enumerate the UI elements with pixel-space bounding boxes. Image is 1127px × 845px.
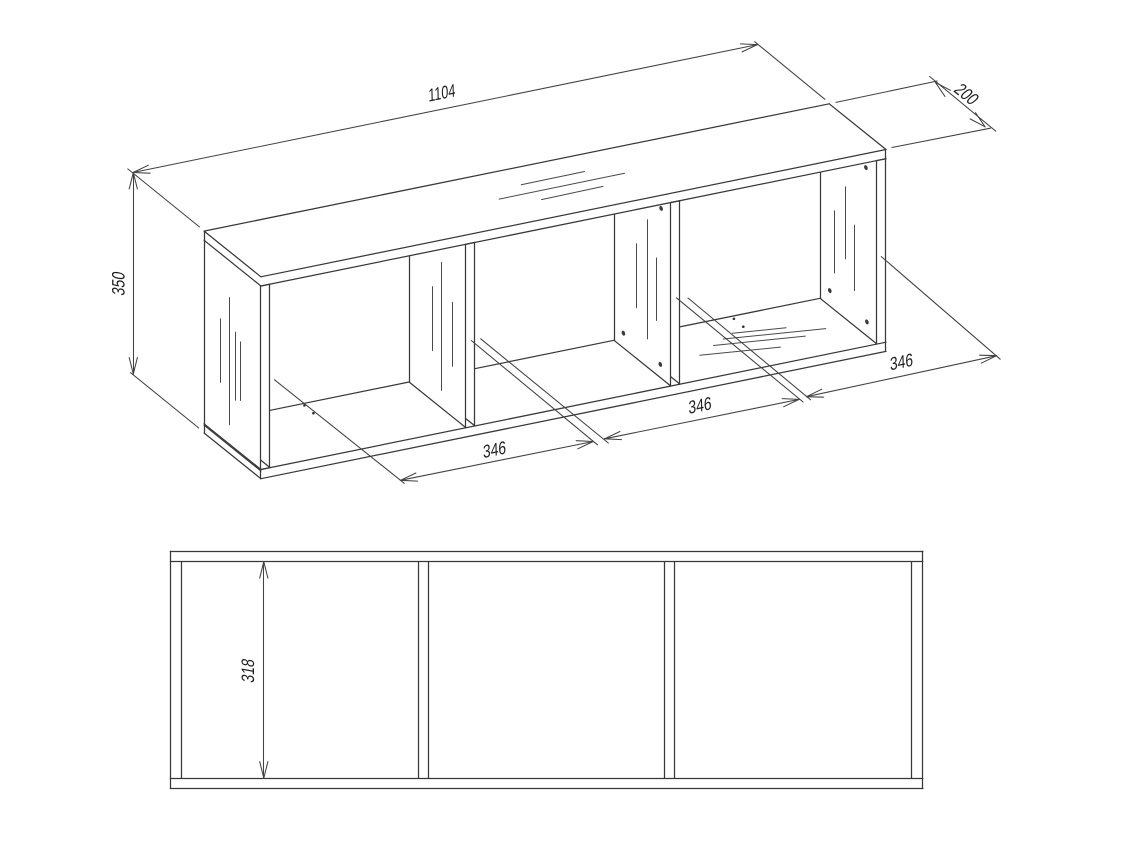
svg-text:350: 350 (108, 270, 128, 297)
svg-text:318: 318 (238, 657, 258, 684)
